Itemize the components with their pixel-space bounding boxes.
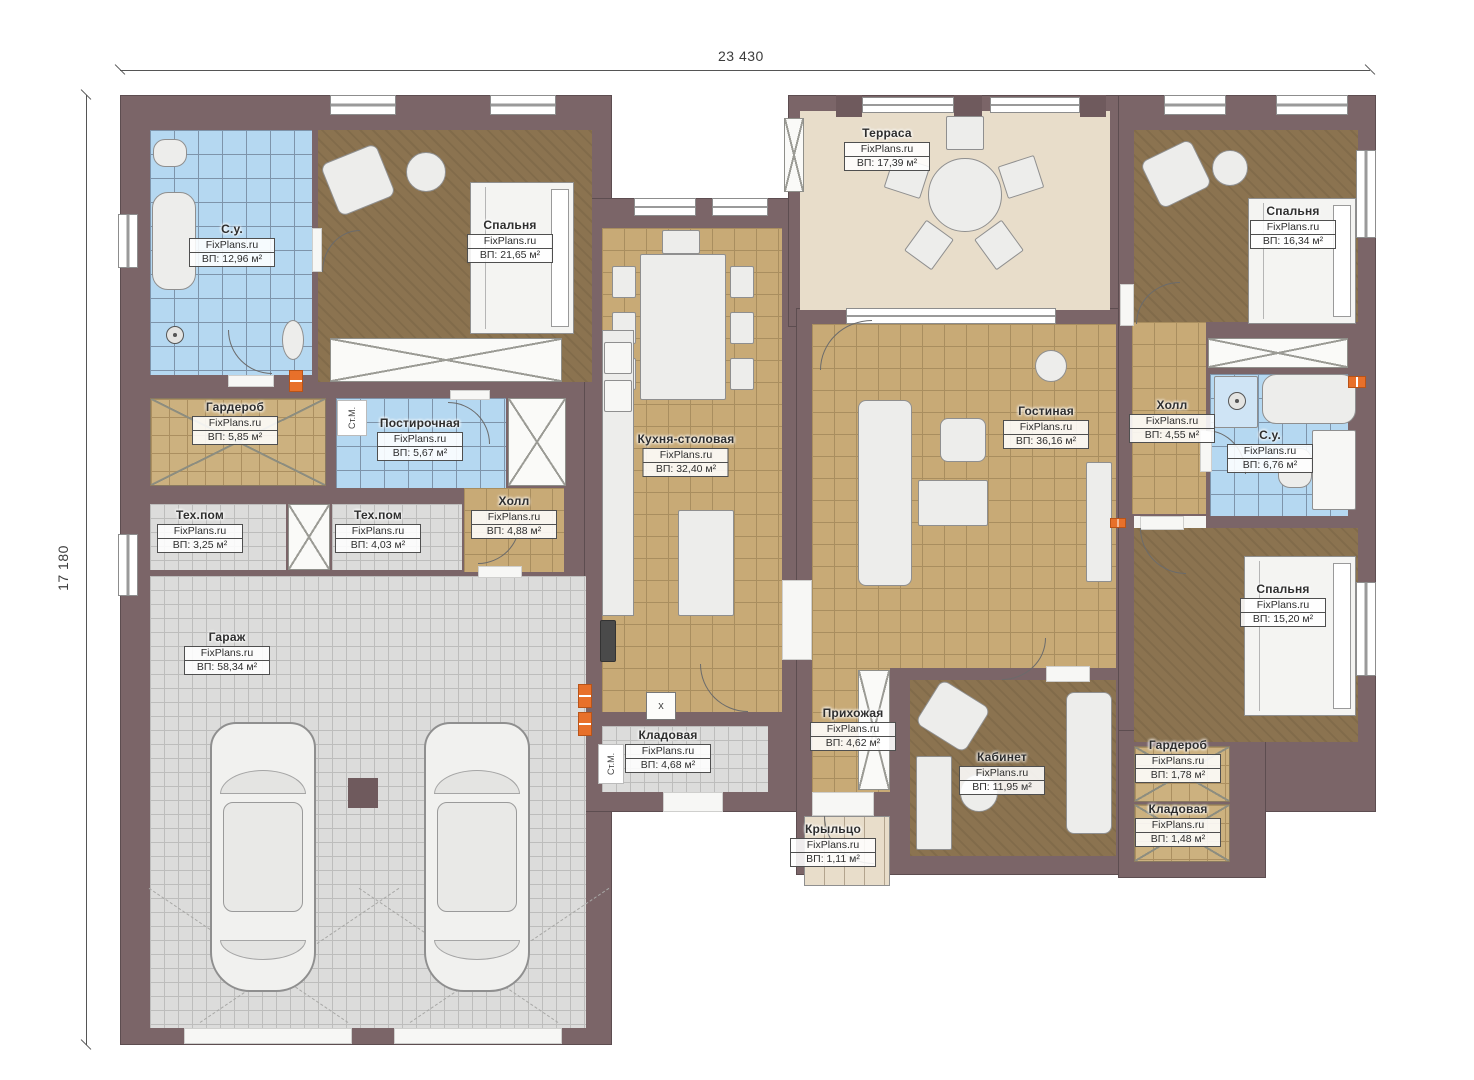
room-label-garage: Гараж FixPlans.ru ВП: 58,34 м² <box>184 630 270 675</box>
watermark: FixPlans.ru <box>377 432 463 447</box>
room-name: Холл <box>1129 398 1215 412</box>
door-opening <box>812 792 874 816</box>
room-area: ВП: 17,39 м² <box>844 156 930 171</box>
room-name: Кухня-столовая <box>638 432 735 446</box>
washer-note: Ст.М. <box>337 400 367 436</box>
watermark: FixPlans.ru <box>184 646 270 661</box>
room-name: Гардероб <box>1135 738 1221 752</box>
watermark: FixPlans.ru <box>844 142 930 157</box>
window <box>634 198 696 216</box>
car-rear-window <box>220 940 306 960</box>
side-table <box>1212 150 1248 186</box>
window <box>1276 95 1348 115</box>
cross-marker: x <box>646 692 676 720</box>
window <box>1356 150 1376 238</box>
kitchen-island <box>678 510 734 616</box>
room-label-wardrobe-2: Гардероб FixPlans.ru ВП: 1,78 м² <box>1135 738 1221 783</box>
watermark: FixPlans.ru <box>1240 598 1326 613</box>
closet <box>1208 338 1348 368</box>
sofa <box>1066 692 1112 834</box>
room-area: ВП: 4,88 м² <box>471 524 557 539</box>
side-table <box>406 152 446 192</box>
room-area: ВП: 4,03 м² <box>335 538 421 553</box>
door-opening <box>228 375 274 387</box>
bed <box>1244 556 1356 716</box>
room-area: ВП: 15,20 м² <box>1240 612 1326 627</box>
room-label-bedroom-1: Спальня FixPlans.ru ВП: 21,65 м² <box>467 218 553 263</box>
closet <box>330 338 562 382</box>
room-name: С.у. <box>189 222 275 236</box>
room-name: Спальня <box>1240 582 1326 596</box>
dimension-width: 23 430 <box>718 48 764 64</box>
room-area: ВП: 58,34 м² <box>184 660 270 675</box>
room-area: ВП: 5,85 м² <box>192 430 278 445</box>
stove <box>600 620 616 662</box>
room-name: Постирочная <box>377 416 463 430</box>
room-name: Крыльцо <box>790 822 876 836</box>
utility-marker <box>1348 376 1366 388</box>
dimension-height: 17 180 <box>55 545 71 591</box>
watermark: FixPlans.ru <box>625 744 711 759</box>
window <box>118 534 138 596</box>
garage-gate <box>184 1028 352 1044</box>
room-name: Тех.пом <box>157 508 243 522</box>
watermark: FixPlans.ru <box>1135 818 1221 833</box>
door-opening <box>782 580 812 660</box>
room-area: ВП: 4,55 м² <box>1129 428 1215 443</box>
window-panel <box>784 118 804 192</box>
watermark: FixPlans.ru <box>643 448 729 463</box>
room-label-bedroom-3: Спальня FixPlans.ru ВП: 15,20 м² <box>1240 582 1326 627</box>
room-area: ВП: 32,40 м² <box>643 462 729 477</box>
closet <box>508 398 566 486</box>
watermark: FixPlans.ru <box>810 722 896 737</box>
utility-marker <box>1110 518 1126 528</box>
room-label-storage-1: Кладовая FixPlans.ru ВП: 4,68 м² <box>625 728 711 773</box>
shower-drain <box>166 326 184 344</box>
room-area: ВП: 1,11 м² <box>790 852 876 867</box>
watermark: FixPlans.ru <box>1129 414 1215 429</box>
watermark: FixPlans.ru <box>189 238 275 253</box>
watermark: FixPlans.ru <box>1250 220 1336 235</box>
room-name: Гостиная <box>1003 404 1089 418</box>
room-name: Прихожая <box>810 706 896 720</box>
room-name: Кабинет <box>959 750 1045 764</box>
room-name: Кладовая <box>1135 802 1221 816</box>
window <box>330 95 396 115</box>
window <box>712 198 768 216</box>
terrace-pillar <box>954 95 982 117</box>
vanity <box>1312 430 1356 510</box>
kitchen-sink <box>604 342 632 374</box>
room-label-storage-2: Кладовая FixPlans.ru ВП: 1,48 м² <box>1135 802 1221 847</box>
dining-table <box>640 254 726 400</box>
watermark: FixPlans.ru <box>471 510 557 525</box>
room-area: ВП: 4,62 м² <box>810 736 896 751</box>
watermark: FixPlans.ru <box>790 838 876 853</box>
door-opening <box>1046 666 1090 682</box>
car-rear-window <box>434 940 520 960</box>
room-area: ВП: 36,16 м² <box>1003 434 1089 449</box>
dimension-line-left <box>86 95 87 1045</box>
watermark: FixPlans.ru <box>1003 420 1089 435</box>
sliding-door <box>846 308 1056 324</box>
chair <box>612 266 636 298</box>
car <box>424 722 530 992</box>
room-label-bathroom-1: С.у. FixPlans.ru ВП: 12,96 м² <box>189 222 275 267</box>
armchair <box>940 418 986 462</box>
room-name: Тех.пом <box>335 508 421 522</box>
door-opening <box>450 390 490 400</box>
room-label-hall-1: Холл FixPlans.ru ВП: 4,88 м² <box>471 494 557 539</box>
plant <box>1035 350 1067 382</box>
terrace-pillar <box>836 95 862 117</box>
chair <box>730 266 754 298</box>
coffee-table <box>918 480 988 526</box>
watermark: FixPlans.ru <box>192 416 278 431</box>
washer-note: Ст.М. <box>598 744 624 784</box>
terrace-window <box>862 97 954 113</box>
utility-marker <box>578 712 592 736</box>
room-name: Холл <box>471 494 557 508</box>
chair <box>946 116 984 150</box>
room-area: ВП: 1,48 м² <box>1135 832 1221 847</box>
room-name: Кладовая <box>625 728 711 742</box>
door-opening <box>312 228 322 272</box>
car-roof <box>223 802 303 912</box>
room-label-hall-2: Холл FixPlans.ru ВП: 4,55 м² <box>1129 398 1215 443</box>
room-label-office: Кабинет FixPlans.ru ВП: 11,95 м² <box>959 750 1045 795</box>
room-area: ВП: 12,96 м² <box>189 252 275 267</box>
window <box>1356 582 1376 676</box>
room-label-tech-room-2: Тех.пом FixPlans.ru ВП: 4,03 м² <box>335 508 421 553</box>
room-area: ВП: 4,68 м² <box>625 758 711 773</box>
room-area: ВП: 1,78 м² <box>1135 768 1221 783</box>
room-area: ВП: 6,76 м² <box>1227 458 1313 473</box>
room-label-tech-room-1: Тех.пом FixPlans.ru ВП: 3,25 м² <box>157 508 243 553</box>
dimension-line-top <box>120 70 1370 71</box>
watermark: FixPlans.ru <box>1135 754 1221 769</box>
car <box>210 722 316 992</box>
room-area: ВП: 11,95 м² <box>959 780 1045 795</box>
room-label-living-room: Гостиная FixPlans.ru ВП: 36,16 м² <box>1003 404 1089 449</box>
room-area: ВП: 16,34 м² <box>1250 234 1336 249</box>
room-label-kitchen-dining: Кухня-столовая FixPlans.ru ВП: 32,40 м² <box>638 432 735 477</box>
round-table <box>928 158 1002 232</box>
window <box>490 95 556 115</box>
room-name: Терраса <box>844 126 930 140</box>
terrace-pillar <box>1080 95 1106 117</box>
tv-stand <box>1086 462 1112 582</box>
cooktop <box>604 380 632 412</box>
door-opening <box>663 792 723 812</box>
room-label-bathroom-2: С.у. FixPlans.ru ВП: 6,76 м² <box>1227 428 1313 473</box>
door-opening <box>1120 284 1134 326</box>
room-name: Спальня <box>467 218 553 232</box>
utility-marker <box>289 370 303 392</box>
bathtub <box>1262 374 1356 424</box>
watermark: FixPlans.ru <box>959 766 1045 781</box>
terrace-window <box>990 97 1080 113</box>
window <box>118 214 138 268</box>
shower-drain <box>1228 392 1246 410</box>
room-label-entry-hall: Прихожая FixPlans.ru ВП: 4,62 м² <box>810 706 896 751</box>
room-label-porch: Крыльцо FixPlans.ru ВП: 1,11 м² <box>790 822 876 867</box>
watermark: FixPlans.ru <box>1227 444 1313 459</box>
room-area: ВП: 3,25 м² <box>157 538 243 553</box>
room-area: ВП: 21,65 м² <box>467 248 553 263</box>
toilet <box>153 139 187 167</box>
room-name: Спальня <box>1250 204 1336 218</box>
desk <box>916 756 952 850</box>
chair <box>730 312 754 344</box>
room-name: Гараж <box>184 630 270 644</box>
sink <box>282 320 304 360</box>
watermark: FixPlans.ru <box>335 524 421 539</box>
watermark: FixPlans.ru <box>467 234 553 249</box>
car-roof <box>437 802 517 912</box>
room-label-bedroom-2: Спальня FixPlans.ru ВП: 16,34 м² <box>1250 204 1336 249</box>
garage-gate <box>394 1028 562 1044</box>
floor-plan: 23 430 17 180 <box>0 0 1474 1080</box>
utility-marker <box>578 684 592 708</box>
window <box>1164 95 1226 115</box>
car-windshield <box>220 770 306 794</box>
door-opening <box>478 566 522 578</box>
closet <box>288 504 330 570</box>
room-name: С.у. <box>1227 428 1313 442</box>
room-label-terrace: Терраса FixPlans.ru ВП: 17,39 м² <box>844 126 930 171</box>
room-name: Гардероб <box>192 400 278 414</box>
chair <box>730 358 754 390</box>
room-label-wardrobe-1: Гардероб FixPlans.ru ВП: 5,85 м² <box>192 400 278 445</box>
car-windshield <box>434 770 520 794</box>
sofa <box>858 400 912 586</box>
floor-drain <box>348 778 378 808</box>
chair <box>662 230 700 254</box>
room-area: ВП: 5,67 м² <box>377 446 463 461</box>
room-label-laundry: Постирочная FixPlans.ru ВП: 5,67 м² <box>377 416 463 461</box>
watermark: FixPlans.ru <box>157 524 243 539</box>
